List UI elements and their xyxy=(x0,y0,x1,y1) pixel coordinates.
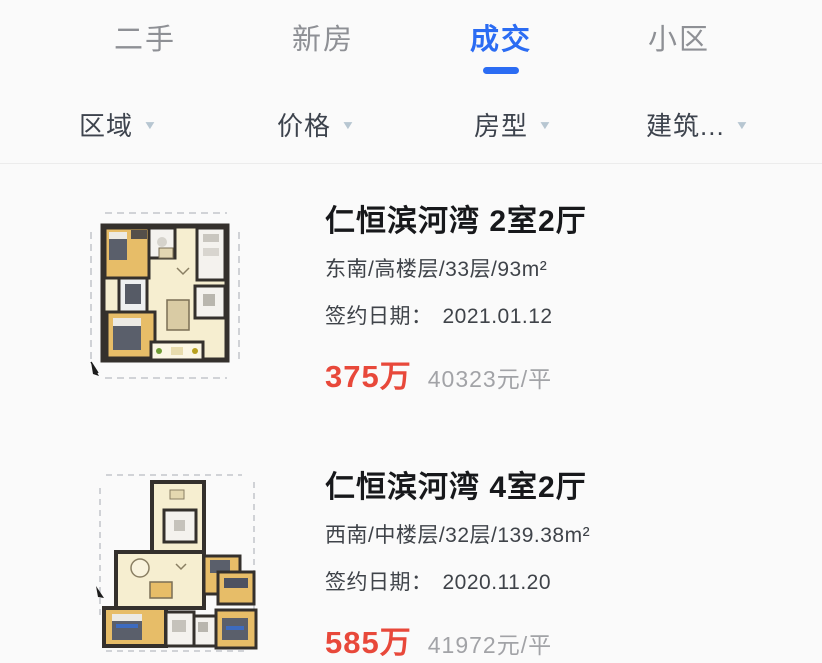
listing-info: 仁恒滨河湾 2室2厅 东南/高楼层/33层/93m² 签约日期：2021.01.… xyxy=(325,206,587,396)
tab-chengjiao[interactable]: 成交 xyxy=(470,16,532,84)
listing-title: 仁恒滨河湾 4室2厅 xyxy=(325,472,590,504)
divider xyxy=(0,163,822,164)
tab-label: 小区 xyxy=(648,24,710,56)
filter-price[interactable]: 价格 ▼ xyxy=(277,106,354,143)
signing-date-value: 2020.11.20 xyxy=(443,571,552,594)
floorplan-image xyxy=(92,468,262,663)
transaction-list: 仁恒滨河湾 2室2厅 东南/高楼层/33层/93m² 签约日期：2021.01.… xyxy=(0,202,822,658)
signing-date-label: 签约日期： xyxy=(325,571,433,594)
total-price: 375万 xyxy=(325,351,412,396)
filter-region[interactable]: 区域 ▼ xyxy=(79,106,156,143)
signing-date-row: 签约日期：2021.01.12 xyxy=(325,305,587,329)
tab-xinfang[interactable]: 新房 xyxy=(292,16,354,84)
chevron-down-icon: ▼ xyxy=(341,118,356,132)
chevron-down-icon: ▼ xyxy=(143,118,158,132)
chevron-down-icon: ▼ xyxy=(538,118,553,132)
tab-active-underline xyxy=(483,67,519,74)
chevron-down-icon: ▼ xyxy=(734,118,749,132)
tab-label: 成交 xyxy=(470,24,532,56)
listing-specs: 东南/高楼层/33层/93m² xyxy=(325,258,587,282)
listing-card[interactable]: 仁恒滨河湾 2室2厅 东南/高楼层/33层/93m² 签约日期：2021.01.… xyxy=(0,202,822,392)
tab-label: 二手 xyxy=(114,24,176,56)
price-row: 375万 40323元/平 xyxy=(325,351,587,396)
listing-specs: 西南/中楼层/32层/139.38m² xyxy=(325,524,590,548)
signing-date-value: 2021.01.12 xyxy=(443,305,553,328)
unit-price: 41972元/平 xyxy=(428,626,552,660)
listing-title: 仁恒滨河湾 2室2厅 xyxy=(325,206,587,238)
listing-info: 仁恒滨河湾 4室2厅 西南/中楼层/32层/139.38m² 签约日期：2020… xyxy=(325,472,590,662)
signing-date-row: 签约日期：2020.11.20 xyxy=(325,571,590,595)
filter-layout[interactable]: 房型 ▼ xyxy=(474,106,551,143)
tab-label: 新房 xyxy=(292,24,354,56)
floorplan-image xyxy=(85,202,245,392)
signing-date-label: 签约日期： xyxy=(325,305,433,328)
total-price: 585万 xyxy=(325,617,412,662)
price-row: 585万 41972元/平 xyxy=(325,617,590,662)
filter-building[interactable]: 建筑... ▼ xyxy=(646,106,748,143)
tab-bar: 二手 新房 成交 小区 xyxy=(0,0,822,84)
tab-ershou[interactable]: 二手 xyxy=(114,16,176,84)
unit-price: 40323元/平 xyxy=(428,360,552,394)
filter-label: 建筑... xyxy=(646,106,725,143)
filter-label: 区域 xyxy=(79,106,133,143)
listing-card[interactable]: 仁恒滨河湾 4室2厅 西南/中楼层/32层/139.38m² 签约日期：2020… xyxy=(0,468,822,658)
filter-label: 房型 xyxy=(474,106,528,143)
filter-label: 价格 xyxy=(277,106,331,143)
app-root: 二手 新房 成交 小区 区域 ▼ 价格 ▼ 房型 ▼ 建筑... xyxy=(0,0,822,660)
filter-bar: 区域 ▼ 价格 ▼ 房型 ▼ 建筑... ▼ xyxy=(0,84,822,163)
tab-xiaoqu[interactable]: 小区 xyxy=(648,16,710,84)
